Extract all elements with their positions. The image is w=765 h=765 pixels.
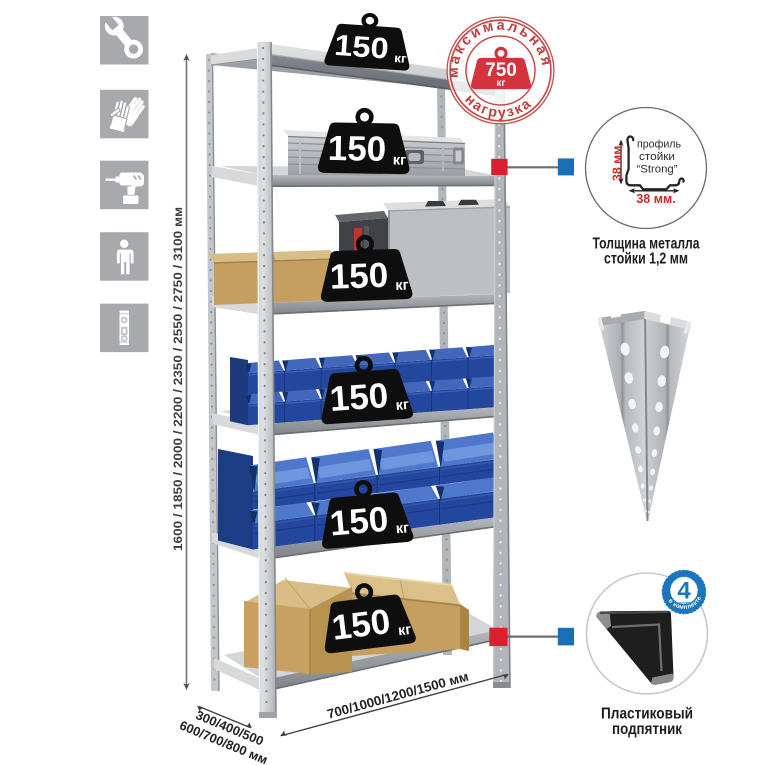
svg-text:стойки: стойки bbox=[639, 151, 675, 163]
svg-text:подпятник: подпятник bbox=[612, 721, 682, 738]
svg-text:“Strong”: “Strong” bbox=[637, 164, 678, 176]
svg-text:38 мм.: 38 мм. bbox=[636, 192, 675, 206]
svg-text:стойки 1,2 мм: стойки 1,2 мм bbox=[604, 251, 688, 268]
svg-text:Пластиковый: Пластиковый bbox=[601, 706, 693, 723]
svg-text:профиль: профиль bbox=[637, 139, 681, 151]
svg-text:кг: кг bbox=[496, 78, 505, 89]
svg-text:38 мм.: 38 мм. bbox=[610, 143, 625, 181]
svg-text:1600 / 1850 / 2000 / 2200 / 23: 1600 / 1850 / 2000 / 2200 / 2350 / 2550 … bbox=[171, 207, 185, 551]
